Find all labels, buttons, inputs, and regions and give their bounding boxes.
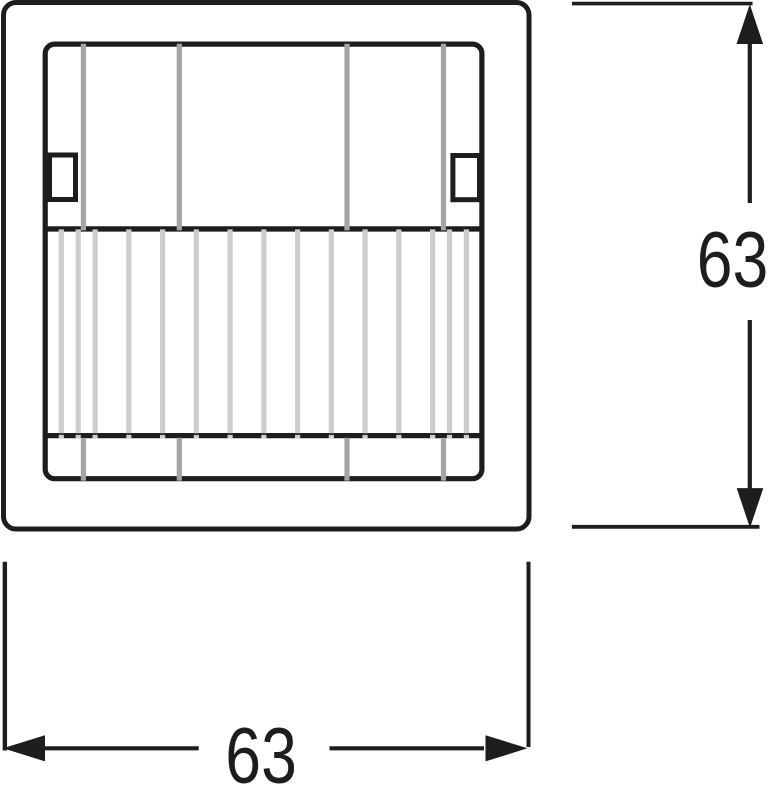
- svg-text:63: 63: [225, 713, 297, 800]
- svg-text:63: 63: [697, 217, 769, 304]
